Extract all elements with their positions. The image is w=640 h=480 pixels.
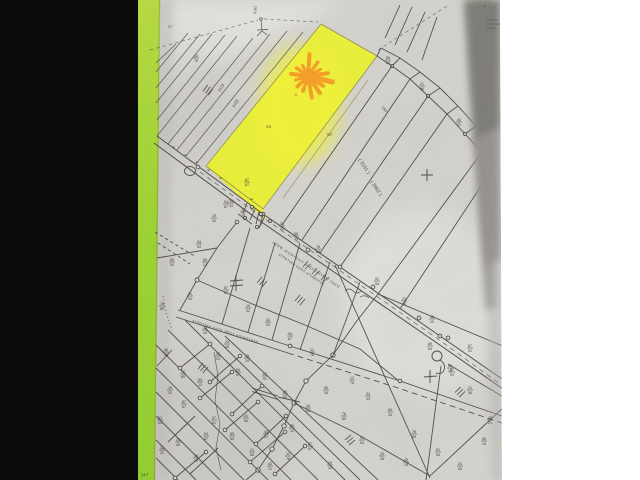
svg-text:19: 19 <box>430 320 434 324</box>
svg-text:67: 67 <box>212 416 216 420</box>
svg-text:54: 54 <box>236 368 240 372</box>
svg-text:21: 21 <box>488 421 492 425</box>
svg-text:19: 19 <box>482 442 486 446</box>
svg-text:12: 12 <box>203 263 207 267</box>
svg-text:14 Γ: 14 Γ <box>141 472 150 477</box>
svg-text:54: 54 <box>158 421 162 425</box>
svg-text:89: 89 <box>181 375 185 379</box>
svg-text:54: 54 <box>224 200 228 204</box>
svg-text:67: 67 <box>468 344 472 348</box>
svg-text:23: 23 <box>458 462 462 466</box>
svg-text:34: 34 <box>306 404 310 408</box>
svg-text:65: 65 <box>283 395 287 399</box>
svg-text:91: 91 <box>450 373 454 377</box>
svg-text:91: 91 <box>436 448 440 452</box>
svg-text:89: 89 <box>160 307 164 311</box>
svg-text:87: 87 <box>245 178 249 182</box>
svg-text:12: 12 <box>350 376 354 380</box>
svg-text:4α: 4α <box>195 160 199 164</box>
svg-text:19: 19 <box>168 386 172 390</box>
svg-text:45: 45 <box>482 437 486 441</box>
svg-text:4α: 4α <box>207 168 211 172</box>
svg-text:23: 23 <box>160 451 164 455</box>
svg-text:78: 78 <box>350 381 354 385</box>
svg-text:78: 78 <box>286 457 290 461</box>
svg-text:56: 56 <box>244 419 248 423</box>
svg-text:89: 89 <box>386 56 390 60</box>
svg-text:91: 91 <box>375 277 379 281</box>
svg-text:45: 45 <box>194 454 198 458</box>
svg-text:45: 45 <box>458 467 462 471</box>
svg-text:4α: 4α <box>184 153 188 157</box>
svg-text:19: 19 <box>245 359 249 363</box>
svg-text:19: 19 <box>328 461 332 465</box>
svg-text:54: 54 <box>288 332 292 336</box>
svg-text:32: 32 <box>328 466 332 470</box>
svg-text:54: 54 <box>360 441 364 445</box>
svg-text:19: 19 <box>212 214 216 218</box>
svg-text:56: 56 <box>420 87 424 91</box>
svg-text:34: 34 <box>164 353 168 357</box>
svg-text:87: 87 <box>288 337 292 341</box>
svg-text:56: 56 <box>468 391 472 395</box>
svg-text:23: 23 <box>216 357 220 361</box>
svg-text:54: 54 <box>204 432 208 436</box>
svg-text:87: 87 <box>308 442 312 446</box>
svg-text:67: 67 <box>263 372 267 376</box>
svg-text:4α: 4α <box>250 197 254 201</box>
svg-text:19: 19 <box>194 459 198 463</box>
svg-text:23: 23 <box>380 452 384 456</box>
svg-text:12: 12 <box>448 369 452 373</box>
svg-text:78: 78 <box>181 370 185 374</box>
svg-text:34: 34 <box>324 391 328 395</box>
svg-text:32: 32 <box>160 446 164 450</box>
svg-text:19: 19 <box>246 304 250 308</box>
svg-text:34: 34 <box>203 326 207 330</box>
svg-text:21: 21 <box>457 123 461 127</box>
svg-text:91: 91 <box>360 436 364 440</box>
svg-text:54: 54 <box>188 297 192 301</box>
svg-text:54: 54 <box>436 453 440 457</box>
svg-text:34: 34 <box>388 413 392 417</box>
svg-text:27: 27 <box>168 24 173 29</box>
svg-text:56: 56 <box>250 453 254 457</box>
svg-text:4α: 4α <box>172 145 176 149</box>
svg-text:32: 32 <box>280 222 284 226</box>
svg-text:56: 56 <box>324 386 328 390</box>
svg-text:89: 89 <box>230 432 234 436</box>
svg-text:91: 91 <box>263 377 267 381</box>
svg-text:78: 78 <box>310 353 314 357</box>
svg-text:43: 43 <box>366 397 370 401</box>
svg-text:45: 45 <box>430 315 434 319</box>
svg-text:65: 65 <box>386 61 390 65</box>
svg-text:23: 23 <box>225 340 229 344</box>
svg-text:91: 91 <box>158 416 162 420</box>
svg-text:4α: 4α <box>219 176 223 180</box>
svg-text:65: 65 <box>203 258 207 262</box>
svg-text:45: 45 <box>402 302 406 306</box>
svg-text:23: 23 <box>280 227 284 231</box>
svg-text:23: 23 <box>402 297 406 301</box>
svg-text:91: 91 <box>188 292 192 296</box>
svg-text:65: 65 <box>198 378 202 382</box>
svg-text:32: 32 <box>246 309 250 313</box>
svg-text:45: 45 <box>404 458 408 462</box>
svg-text:67: 67 <box>308 447 312 451</box>
svg-text:12: 12 <box>290 429 294 433</box>
svg-text:12: 12 <box>194 54 198 58</box>
svg-text:21: 21 <box>268 467 272 471</box>
svg-text:56: 56 <box>388 408 392 412</box>
svg-text:34: 34 <box>294 237 298 241</box>
svg-text:87: 87 <box>236 373 240 377</box>
svg-text:34: 34 <box>366 392 370 396</box>
svg-text:21: 21 <box>244 414 248 418</box>
svg-text:56: 56 <box>164 348 168 352</box>
svg-text:67: 67 <box>224 291 228 295</box>
svg-text:78: 78 <box>316 245 320 249</box>
svg-text:56: 56 <box>170 258 174 262</box>
svg-text:32: 32 <box>168 391 172 395</box>
svg-text:43: 43 <box>229 204 233 208</box>
svg-text:43: 43 <box>306 409 310 413</box>
svg-text:43: 43 <box>457 118 461 122</box>
svg-text:65: 65 <box>428 347 432 351</box>
svg-text:91: 91 <box>468 349 472 353</box>
svg-text:45: 45 <box>380 457 384 461</box>
svg-text:21: 21 <box>250 448 254 452</box>
svg-text:78: 78 <box>342 412 346 416</box>
svg-text:78: 78 <box>412 430 416 434</box>
svg-text:43: 43 <box>197 245 201 249</box>
svg-text:87: 87 <box>182 400 186 404</box>
svg-text:23: 23 <box>266 323 270 327</box>
svg-text:12: 12 <box>286 452 290 456</box>
svg-text:43: 43 <box>268 462 272 466</box>
svg-text:21: 21 <box>264 435 268 439</box>
svg-text:19: 19 <box>404 463 408 467</box>
svg-text:12: 12 <box>310 348 314 352</box>
svg-text:89: 89 <box>428 342 432 346</box>
svg-text:43: 43 <box>264 430 268 434</box>
svg-text:89: 89 <box>316 250 320 254</box>
svg-text:45: 45 <box>245 354 249 358</box>
svg-text:65: 65 <box>448 364 452 368</box>
svg-text:67: 67 <box>182 405 186 409</box>
svg-text:32: 32 <box>216 352 220 356</box>
svg-text:32: 32 <box>266 318 270 322</box>
svg-text:65: 65 <box>230 437 234 441</box>
svg-text:21: 21 <box>420 82 424 86</box>
svg-text:56: 56 <box>294 232 298 236</box>
svg-text:78: 78 <box>194 59 198 63</box>
svg-text:1:5000: 1:5000 <box>487 26 497 30</box>
svg-text:87: 87 <box>224 205 228 209</box>
svg-text:43: 43 <box>488 416 492 420</box>
svg-text:43: 43 <box>203 331 207 335</box>
svg-text:87: 87 <box>224 286 228 290</box>
svg-text:65: 65 <box>290 424 294 428</box>
svg-text:89: 89 <box>342 417 346 421</box>
svg-text:89: 89 <box>283 390 287 394</box>
svg-text:91: 91 <box>212 421 216 425</box>
svg-text:21: 21 <box>468 386 472 390</box>
svg-text:78: 78 <box>160 302 164 306</box>
svg-text:89: 89 <box>412 435 416 439</box>
svg-text:34: 34 <box>170 263 174 267</box>
svg-text:45: 45 <box>176 443 180 447</box>
svg-text:87: 87 <box>204 437 208 441</box>
svg-text:23: 23 <box>176 438 180 442</box>
svg-text:12: 12 <box>198 383 202 387</box>
svg-text:34: 34 <box>229 199 233 203</box>
svg-text:45: 45 <box>225 345 229 349</box>
svg-text:0103: 0103 <box>253 6 258 14</box>
svg-text:45: 45 <box>266 124 272 129</box>
svg-text:67: 67 <box>245 183 249 187</box>
svg-text:50: 50 <box>327 132 333 137</box>
svg-text:34: 34 <box>197 240 201 244</box>
svg-text:54: 54 <box>375 282 379 286</box>
svg-text:32: 32 <box>212 219 216 223</box>
